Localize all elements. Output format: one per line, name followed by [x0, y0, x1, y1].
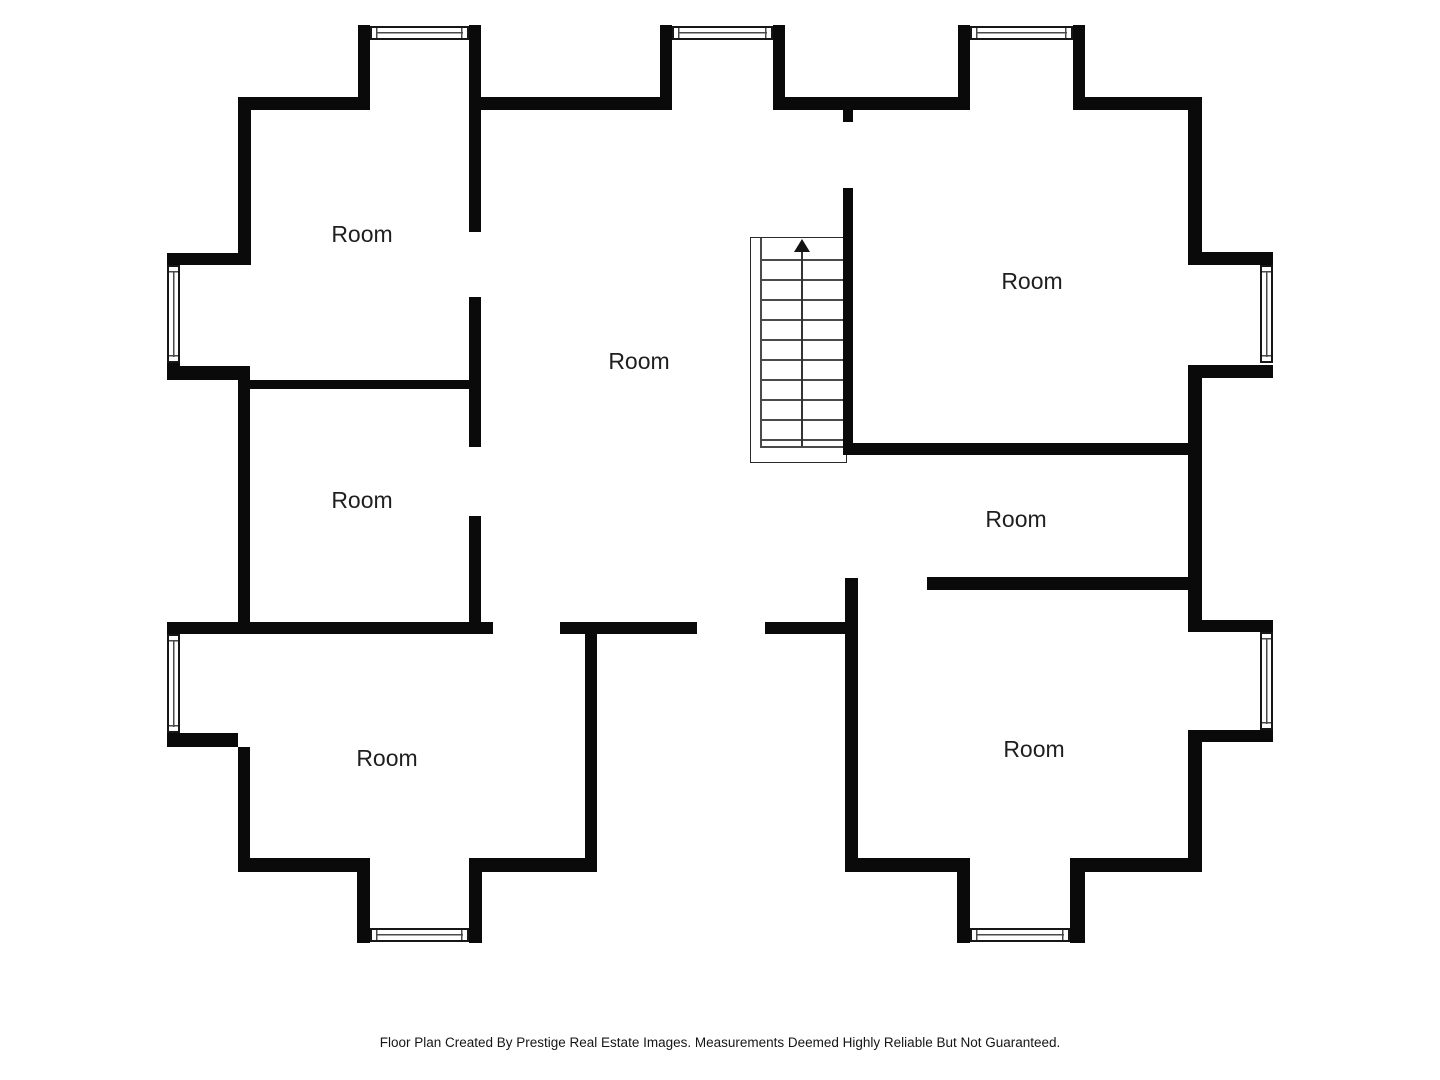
wall-bottomright-bottom-a	[845, 858, 957, 872]
wall-top-a	[238, 97, 358, 110]
wall-stair-right	[843, 188, 853, 455]
stair-edge-line	[760, 238, 762, 446]
window-left-upper	[167, 265, 180, 363]
staircase	[750, 237, 847, 463]
wall-topleft-room-bottom	[167, 366, 250, 380]
window-bottom-right	[970, 928, 1070, 942]
wall-bottomleft-top-c	[765, 622, 845, 634]
room-label-hallway: Room	[985, 506, 1046, 532]
wall-right-top	[1188, 97, 1202, 252]
floor-plan: Room Room Room Room Room Room Room Floor…	[0, 0, 1440, 1080]
room-label-bottom-right: Room	[1003, 736, 1064, 762]
stair-tread-line	[760, 359, 847, 361]
wall-bump-topleft-left	[358, 25, 370, 110]
wall-bump-topright-left	[958, 25, 970, 110]
window-left-lower	[167, 634, 180, 733]
wall-top-b	[481, 97, 660, 110]
wall-bottomleft-left	[238, 747, 250, 872]
wall-rightbump-upper-bottom	[1188, 365, 1273, 378]
wall-center-stub	[843, 110, 853, 122]
wall-top-c	[785, 97, 958, 110]
wall-rightbump-lower-bottom	[1188, 730, 1273, 742]
footer-disclaimer: Floor Plan Created By Prestige Real Esta…	[0, 1035, 1440, 1050]
wall-bump-bottomright-left	[957, 858, 970, 943]
stair-tread-line	[760, 319, 847, 321]
room-label-top-left: Room	[331, 221, 392, 247]
wall-bottomright-left	[845, 578, 858, 860]
wall-bump-topmid-left	[660, 25, 672, 110]
stair-tread-line	[760, 279, 847, 281]
wall-bottomright-right	[1188, 742, 1202, 872]
wall-bump-bottomright-right	[1070, 858, 1085, 943]
wall-rightbump-upper-top	[1188, 252, 1273, 265]
wall-bump-topright-right	[1073, 25, 1085, 110]
room-label-center: Room	[608, 348, 669, 374]
stair-tread-line	[760, 379, 847, 381]
wall-bump-bottomleft-right	[469, 858, 482, 943]
wall-divider-left-b	[469, 297, 481, 447]
wall-bottomright-top	[927, 577, 1188, 590]
wall-bump-topmid-right	[773, 25, 785, 110]
wall-divider-left-a	[469, 110, 481, 232]
stair-landing-line	[760, 446, 847, 448]
window-top-middle	[672, 26, 773, 40]
stair-tread-line	[760, 399, 847, 401]
stair-direction-line	[801, 251, 803, 446]
wall-bottomleft-top-a	[167, 622, 493, 634]
wall-divider-left-c	[469, 516, 481, 634]
wall-left-jog	[167, 253, 238, 265]
wall-partition-middleleft-top	[250, 380, 469, 389]
wall-bottomleft-jog	[167, 733, 238, 747]
stair-tread-line	[760, 299, 847, 301]
wall-bottomleft-right	[585, 622, 597, 872]
wall-bump-bottomleft-left	[357, 858, 370, 943]
window-right-lower	[1260, 632, 1273, 730]
stair-tread-line	[760, 339, 847, 341]
wall-bottomright-bottom-b	[1085, 858, 1202, 872]
window-bottom-left	[370, 928, 469, 942]
room-label-bottom-left: Room	[356, 745, 417, 771]
window-right-upper	[1260, 265, 1273, 363]
wall-below-stairs	[843, 443, 1202, 455]
window-top-left	[370, 26, 469, 40]
stair-tread-line	[760, 419, 847, 421]
wall-middleleft-left	[238, 380, 250, 622]
wall-bump-topleft-right	[469, 25, 481, 110]
window-top-right	[970, 26, 1073, 40]
stairs-up-arrow-icon	[794, 239, 810, 252]
wall-bottomleft-bottom-b	[482, 858, 597, 872]
stair-tread-line	[760, 439, 847, 441]
stair-tread-line	[760, 259, 847, 261]
wall-left-top-vertical	[238, 97, 251, 265]
room-label-middle-left: Room	[331, 487, 392, 513]
wall-right-mid	[1188, 378, 1202, 620]
room-label-top-right: Room	[1001, 268, 1062, 294]
wall-top-d	[1085, 97, 1202, 110]
wall-bottomleft-bottom-a	[238, 858, 358, 872]
wall-bottomleft-top-b	[560, 622, 697, 634]
wall-rightbump-lower-top	[1188, 620, 1273, 632]
